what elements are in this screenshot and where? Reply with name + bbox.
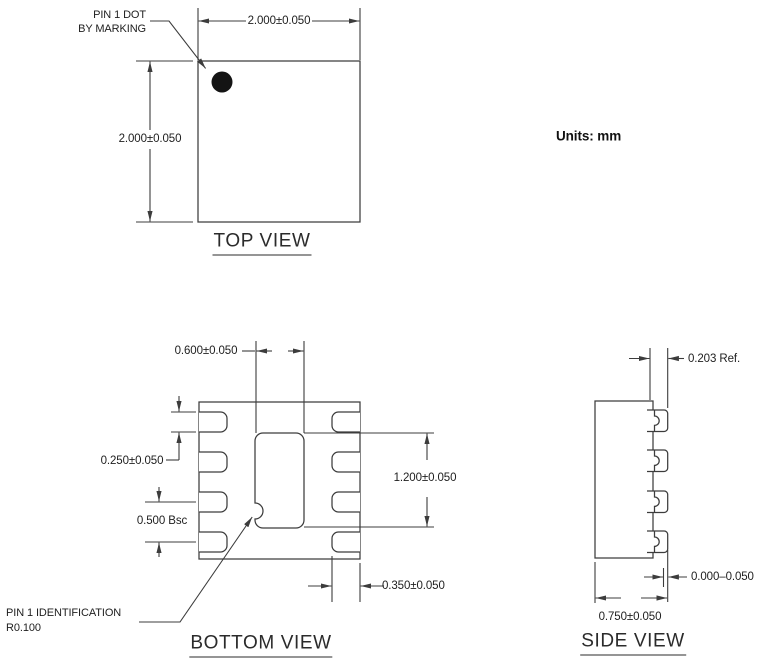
top-view-linework [136, 8, 360, 222]
pin1-dot-label: PIN 1 DOT BY MARKING [78, 8, 146, 36]
pad-width-dim-text: 0.600±0.050 [175, 345, 238, 357]
drawing-linework [0, 0, 760, 668]
pin1-identification-label: PIN 1 IDENTIFICATION R0.100 [6, 606, 121, 636]
top-view-width-dim-text: 2.000±0.050 [248, 15, 311, 27]
bottom-view-title: BOTTOM VIEW [189, 633, 332, 658]
pin1-identification-line1: PIN 1 IDENTIFICATION [6, 606, 121, 621]
pad-height-dim-text: 1.200±0.050 [394, 472, 457, 484]
top-view-height-dim-text: 2.000±0.050 [119, 133, 182, 145]
body-height-dimension [595, 562, 667, 603]
lead-thickness-dimension [629, 348, 684, 408]
pin1-identification-line2: R0.100 [6, 621, 121, 636]
pin-pitch-dim-text: 0.500 Bsc [137, 515, 187, 527]
body-height-dim-text: 0.750±0.050 [599, 611, 662, 623]
units-label: Units: mm [556, 129, 621, 144]
side-view-title: SIDE VIEW [580, 631, 686, 656]
pin-width-dim-text: 0.350±0.050 [382, 580, 445, 592]
pin1-dot [212, 72, 233, 93]
lead-thickness-dim-text: 0.203 Ref. [688, 353, 740, 365]
top-view-title: TOP VIEW [212, 231, 311, 256]
side-view-body-outline [595, 401, 653, 558]
thermal-pad-outline-with-pin1-notch [255, 433, 304, 528]
side-view-linework [595, 348, 687, 603]
pin-length-dim-text: 0.250±0.050 [101, 455, 164, 467]
pin-width-dimension [308, 556, 384, 602]
package-outline-drawing: PIN 1 DOT BY MARKING 2.000±0.050 2.000±0… [0, 0, 760, 668]
pin1-dot-label-line2: BY MARKING [78, 22, 146, 36]
lead-pullback-dim-text: 0.000–0.050 [691, 571, 754, 583]
pin-length-dimension [166, 396, 196, 460]
pin1-dot-label-line1: PIN 1 DOT [78, 8, 146, 22]
